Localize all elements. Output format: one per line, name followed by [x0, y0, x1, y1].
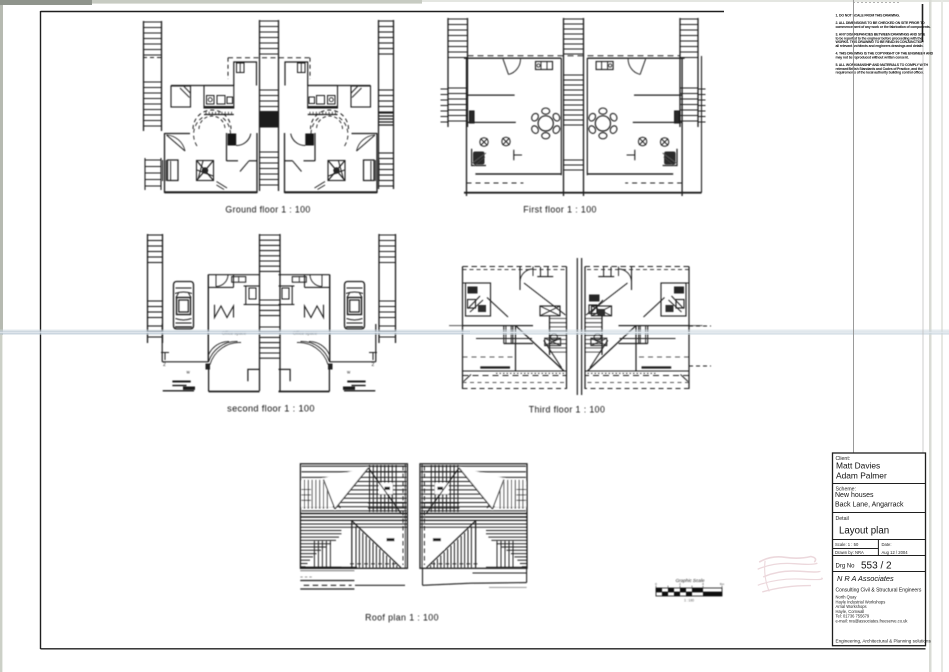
svg-text:Roof plan 1 : 100: Roof plan 1 : 100: [365, 613, 439, 623]
svg-text:Third floor 1 : 100: Third floor 1 : 100: [529, 405, 606, 415]
svg-text:Consulting Civil & Structural: Consulting Civil & Structural Engineers: [836, 588, 922, 594]
svg-text:Aug 12 / 2004: Aug 12 / 2004: [882, 550, 909, 555]
svg-text:Drg No: Drg No: [836, 564, 856, 570]
svg-text:N R A Associates: N R A Associates: [837, 574, 894, 583]
svg-text:6m: 6m: [720, 582, 725, 586]
svg-text:Detail: Detail: [836, 516, 849, 522]
svg-text:Engineering, Architectural & P: Engineering, Architectural & Planning so…: [836, 639, 932, 644]
svg-text:Matt Davies: Matt Davies: [836, 461, 880, 471]
svg-text:Date:: Date:: [882, 542, 892, 547]
svg-text:2: 2: [372, 362, 375, 368]
svg-text:Scale: 1 : 50: Scale: 1 : 50: [835, 542, 859, 547]
svg-text:Drawn by: NRA: Drawn by: NRA: [835, 550, 864, 555]
svg-text:second floor 1 : 100: second floor 1 : 100: [227, 404, 315, 414]
svg-text:Layout plan: Layout plan: [839, 526, 889, 537]
svg-text:1 : 100: 1 : 100: [684, 599, 694, 603]
svg-text:commencement of any work or th: commencement of any work or the fabricat…: [836, 25, 931, 29]
svg-text:e-mail: nra@associates.freeser: e-mail: nra@associates.freeserve.co.uk: [836, 619, 909, 624]
svg-text:1. DO NOT SCALE FROM THIS DRA: 1. DO NOT SCALE FROM THIS DRAWING.: [836, 14, 900, 18]
svg-text:Adam Palmer: Adam Palmer: [836, 471, 887, 481]
svg-text:553 / 2: 553 / 2: [861, 561, 892, 572]
svg-text:2: 2: [163, 362, 166, 368]
svg-text:requirements of the local auth: requirements of the local authority buil…: [836, 71, 924, 75]
svg-text:New houses: New houses: [835, 492, 874, 499]
svg-text:Back Lane, Angarrack: Back Lane, Angarrack: [835, 502, 904, 509]
svg-text:First floor 1 : 100: First floor 1 : 100: [523, 205, 597, 215]
svg-text:may not be reproduced without: may not be reproduced without written co…: [836, 55, 909, 59]
svg-text:Ground floor 1 : 100: Ground floor 1 : 100: [225, 205, 310, 215]
svg-text:all relevant architects and en: all relevant architects and engineers dr…: [836, 44, 924, 48]
